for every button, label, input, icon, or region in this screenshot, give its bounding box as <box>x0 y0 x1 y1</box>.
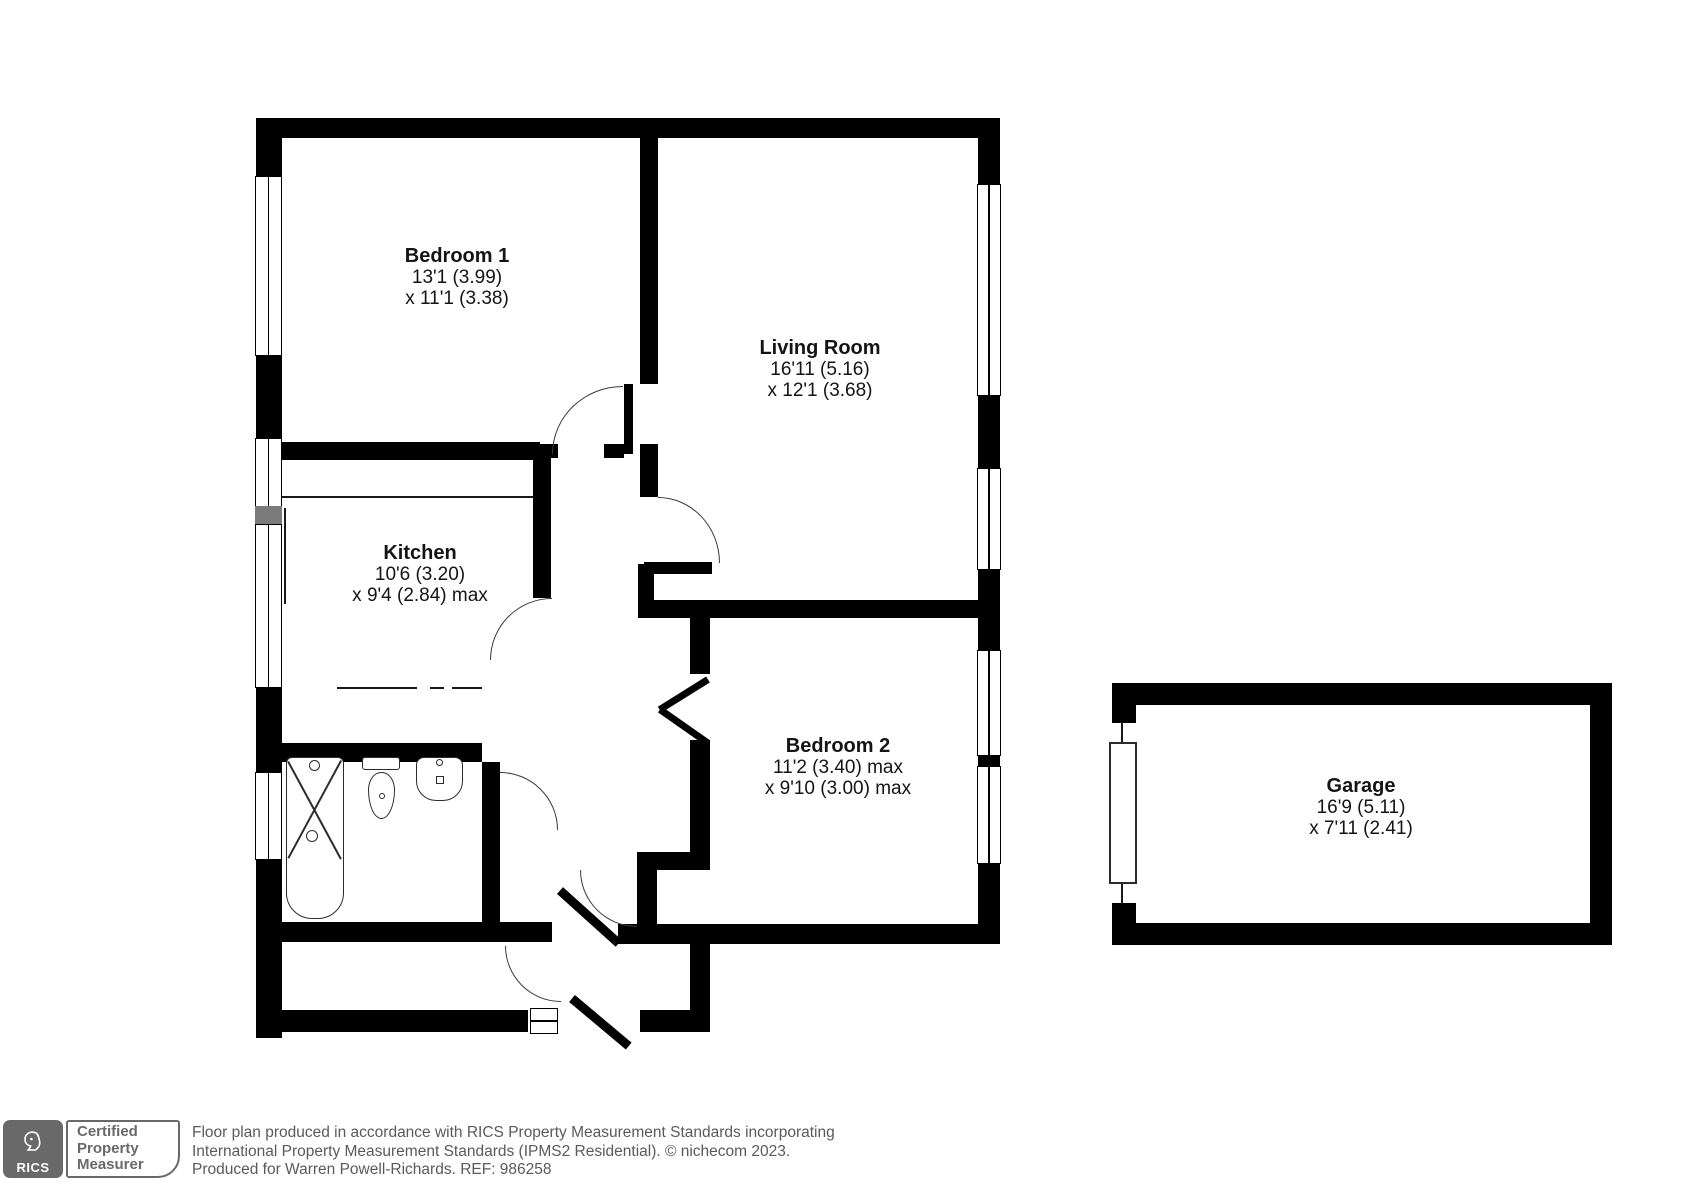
wall-porch-bottom <box>256 1010 528 1032</box>
wall-bottom <box>618 924 1000 944</box>
wall-garage-bottom <box>1112 923 1612 945</box>
room-label-garage: Garage 16'9 (5.11) x 7'11 (2.41) <box>1251 776 1471 839</box>
toilet-dot <box>379 793 385 799</box>
room-dim: 16'9 (5.11) <box>1314 797 1409 818</box>
door-leaf-bedroom2-bifold <box>658 677 710 713</box>
door-leaf-bedroom1 <box>624 384 633 454</box>
window-bedroom2 <box>977 766 1001 864</box>
room-name: Bedroom 2 <box>783 736 893 757</box>
wall-right <box>978 568 1000 652</box>
room-name: Garage <box>1324 776 1399 797</box>
disclaimer-line-3: Produced for Warren Powell-Richards. REF… <box>192 1161 835 1180</box>
room-dim: 13'1 (3.99) <box>409 267 505 288</box>
window-bedroom1 <box>255 176 282 356</box>
room-name: Living Room <box>756 338 883 359</box>
wall-left <box>256 354 282 442</box>
rics-logo: RICS <box>3 1120 63 1178</box>
toilet-cistern <box>362 757 400 770</box>
garage-door-link <box>1121 883 1123 904</box>
wall-left <box>256 686 282 774</box>
rics-lion-icon <box>21 1130 45 1159</box>
room-dim: x 9'10 (3.00) max <box>762 778 914 799</box>
badge-line: Property <box>77 1141 178 1158</box>
wall-kitchen-right <box>533 458 551 598</box>
wall-garage-left <box>1112 683 1136 723</box>
door-arc-bedroom1 <box>552 386 623 454</box>
door-arc-bathroom <box>500 772 558 830</box>
sink-tap <box>436 759 443 766</box>
wall-right <box>978 118 1000 186</box>
room-dim: x 7'11 (2.41) <box>1306 818 1416 839</box>
bathtub-tap <box>309 760 320 771</box>
wall-garage-top <box>1112 683 1612 705</box>
wall-bottom <box>256 922 552 942</box>
window-living <box>977 468 1001 570</box>
window-kitchen <box>255 524 282 688</box>
door-arc-porch <box>505 946 561 1002</box>
kitchen-counter-line <box>282 496 533 498</box>
wall-bathroom-right <box>482 762 500 922</box>
room-label-bedroom1: Bedroom 1 13'1 (3.99) x 11'1 (3.38) <box>347 246 567 309</box>
certified-property-measurer-badge: Certified Property Measurer <box>66 1120 180 1178</box>
kitchen-counter-line <box>430 687 444 689</box>
wall-entrance <box>637 852 657 944</box>
badge-line: Measurer <box>77 1157 178 1174</box>
disclaimer-line-2: International Property Measurement Stand… <box>192 1143 835 1162</box>
wall-garage-right <box>1590 683 1612 945</box>
wall-bedroom1-living <box>640 138 658 384</box>
wall-garage-left <box>1112 903 1136 945</box>
sink-drain <box>436 776 444 784</box>
room-name: Bedroom 1 <box>402 246 512 267</box>
entrance-step <box>530 1021 558 1034</box>
room-label-bedroom2: Bedroom 2 11'2 (3.40) max x 9'10 (3.00) … <box>728 736 948 799</box>
wall-top <box>258 118 1000 138</box>
room-dim: x 11'1 (3.38) <box>402 288 512 309</box>
room-dim: 10'6 (3.20) <box>372 564 468 585</box>
wall-bedroom1-kitchen <box>256 442 540 460</box>
window-bedroom2 <box>977 650 1001 756</box>
room-dim: 11'2 (3.40) max <box>770 757 906 778</box>
window-divider <box>255 506 282 526</box>
bathtub-drain <box>306 830 318 842</box>
wall-living-bedroom2 <box>644 600 978 618</box>
wall-lobby-right <box>690 943 710 1032</box>
room-dim: x 12'1 (3.68) <box>764 380 875 401</box>
garage-door <box>1109 742 1137 884</box>
wall-right <box>978 394 1000 472</box>
wall-hall <box>640 444 658 497</box>
kitchen-counter-line <box>452 687 482 689</box>
door-arc-living <box>658 497 720 563</box>
kitchen-counter-line <box>337 687 417 689</box>
door-arc-kitchen <box>490 598 552 660</box>
window-living <box>977 184 1001 396</box>
disclaimer-text: Floor plan produced in accordance with R… <box>192 1124 835 1180</box>
disclaimer-line-1: Floor plan produced in accordance with R… <box>192 1124 835 1143</box>
door-leaf-bedroom2-bifold <box>658 707 710 747</box>
floorplan-canvas: Bedroom 1 13'1 (3.99) x 11'1 (3.38) Livi… <box>0 0 1704 1184</box>
room-name: Kitchen <box>380 543 459 564</box>
room-dim: 16'11 (5.16) <box>767 359 872 380</box>
garage-door-link <box>1121 722 1123 743</box>
badge-line: Certified <box>77 1124 178 1141</box>
door-leaf-front <box>569 995 631 1049</box>
rics-wordmark: RICS <box>16 1161 49 1174</box>
wall-bedroom2-left <box>690 740 710 870</box>
room-dim: x 9'4 (2.84) max <box>349 585 491 606</box>
wall-hall-stub <box>644 562 712 574</box>
wall-bedroom2-left <box>690 618 710 674</box>
entrance-step <box>530 1008 558 1021</box>
kitchen-counter-line <box>284 508 286 604</box>
window-kitchen <box>255 438 282 508</box>
room-label-kitchen: Kitchen 10'6 (3.20) x 9'4 (2.84) max <box>310 543 530 606</box>
window-bathroom <box>255 772 282 860</box>
room-label-living: Living Room 16'11 (5.16) x 12'1 (3.68) <box>710 338 930 401</box>
wall-left <box>256 118 282 178</box>
